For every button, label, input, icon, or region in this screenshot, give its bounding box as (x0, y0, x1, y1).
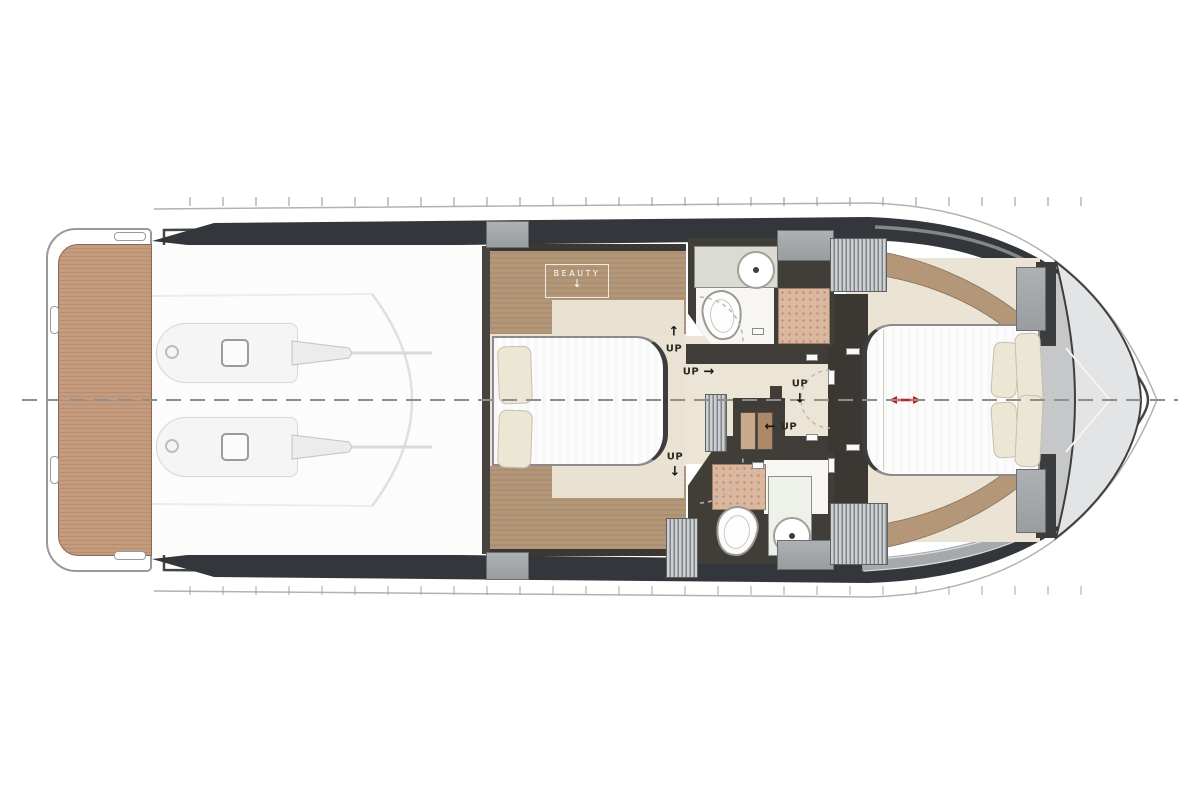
vanity-top (694, 246, 778, 288)
engine-hatch (221, 339, 249, 367)
shower-top (778, 288, 830, 344)
stair-step (740, 412, 756, 450)
pillar-block (777, 540, 834, 570)
door-jamb (806, 434, 818, 441)
pillar-block (1016, 469, 1046, 533)
sink-drain (789, 533, 795, 539)
vip-seat-bottom (552, 466, 684, 498)
cleat (50, 456, 59, 484)
door-jamb (828, 370, 835, 385)
up-label-2: UP (683, 367, 699, 378)
up-label-1: UP (666, 344, 682, 355)
toilet-seat (708, 297, 736, 334)
cleat (114, 551, 146, 560)
cleat (50, 306, 59, 334)
toilet (712, 503, 762, 560)
wardrobe-hatch (830, 503, 888, 565)
engine-room (152, 245, 483, 555)
door-jamb (806, 354, 818, 361)
down-arrow-icon: ↓ (670, 466, 681, 479)
teak-deck (58, 244, 152, 556)
sink-drain (753, 267, 759, 273)
left-arrow-icon: ← (765, 421, 776, 434)
door-jamb (846, 444, 860, 451)
stanchion-ticks-bottom (190, 586, 1081, 595)
bow-chevron (1066, 348, 1110, 452)
cleat (114, 232, 146, 241)
door-jamb (752, 462, 764, 469)
wardrobe-hatch (666, 518, 698, 578)
wardrobe-hatch (830, 238, 887, 292)
boat-floorplan: BEAUTY ↓ UP ↑ UP → UP ↓ UP ← UP ↓ (0, 0, 1200, 792)
toilet-seat (721, 513, 753, 551)
wardrobe-hatch-mid (705, 394, 727, 452)
beauty-arrow-icon: ↓ (546, 278, 608, 289)
up-arrow-icon: ↑ (669, 326, 680, 339)
pillar-block (486, 221, 529, 248)
engine-cap (165, 439, 179, 453)
door-jamb (752, 328, 764, 335)
beauty-label-box: BEAUTY ↓ (545, 264, 609, 298)
vip-seat-top (552, 300, 684, 334)
engine-hatch (221, 433, 249, 461)
bed-fold-line (883, 330, 884, 470)
up-label-4: UP (781, 422, 797, 433)
bow-locker (1056, 262, 1141, 538)
pillar-block (1016, 267, 1046, 331)
pillar-block (777, 230, 834, 261)
right-arrow-icon: → (704, 366, 715, 379)
up-label-5: UP (667, 452, 683, 463)
door-jamb (846, 348, 860, 355)
down-arrow-icon: ↓ (795, 393, 806, 406)
up-label-3: UP (792, 379, 808, 390)
pillar-block (486, 552, 529, 580)
door-jamb (828, 458, 835, 473)
pillow (497, 409, 533, 468)
shower-bottom (712, 464, 766, 510)
pillow (1014, 394, 1044, 467)
engine-cap (165, 345, 179, 359)
pillow (497, 345, 533, 404)
bulkhead (482, 246, 490, 554)
stanchion-ticks-top (190, 197, 1081, 206)
sink-basin (737, 251, 775, 289)
